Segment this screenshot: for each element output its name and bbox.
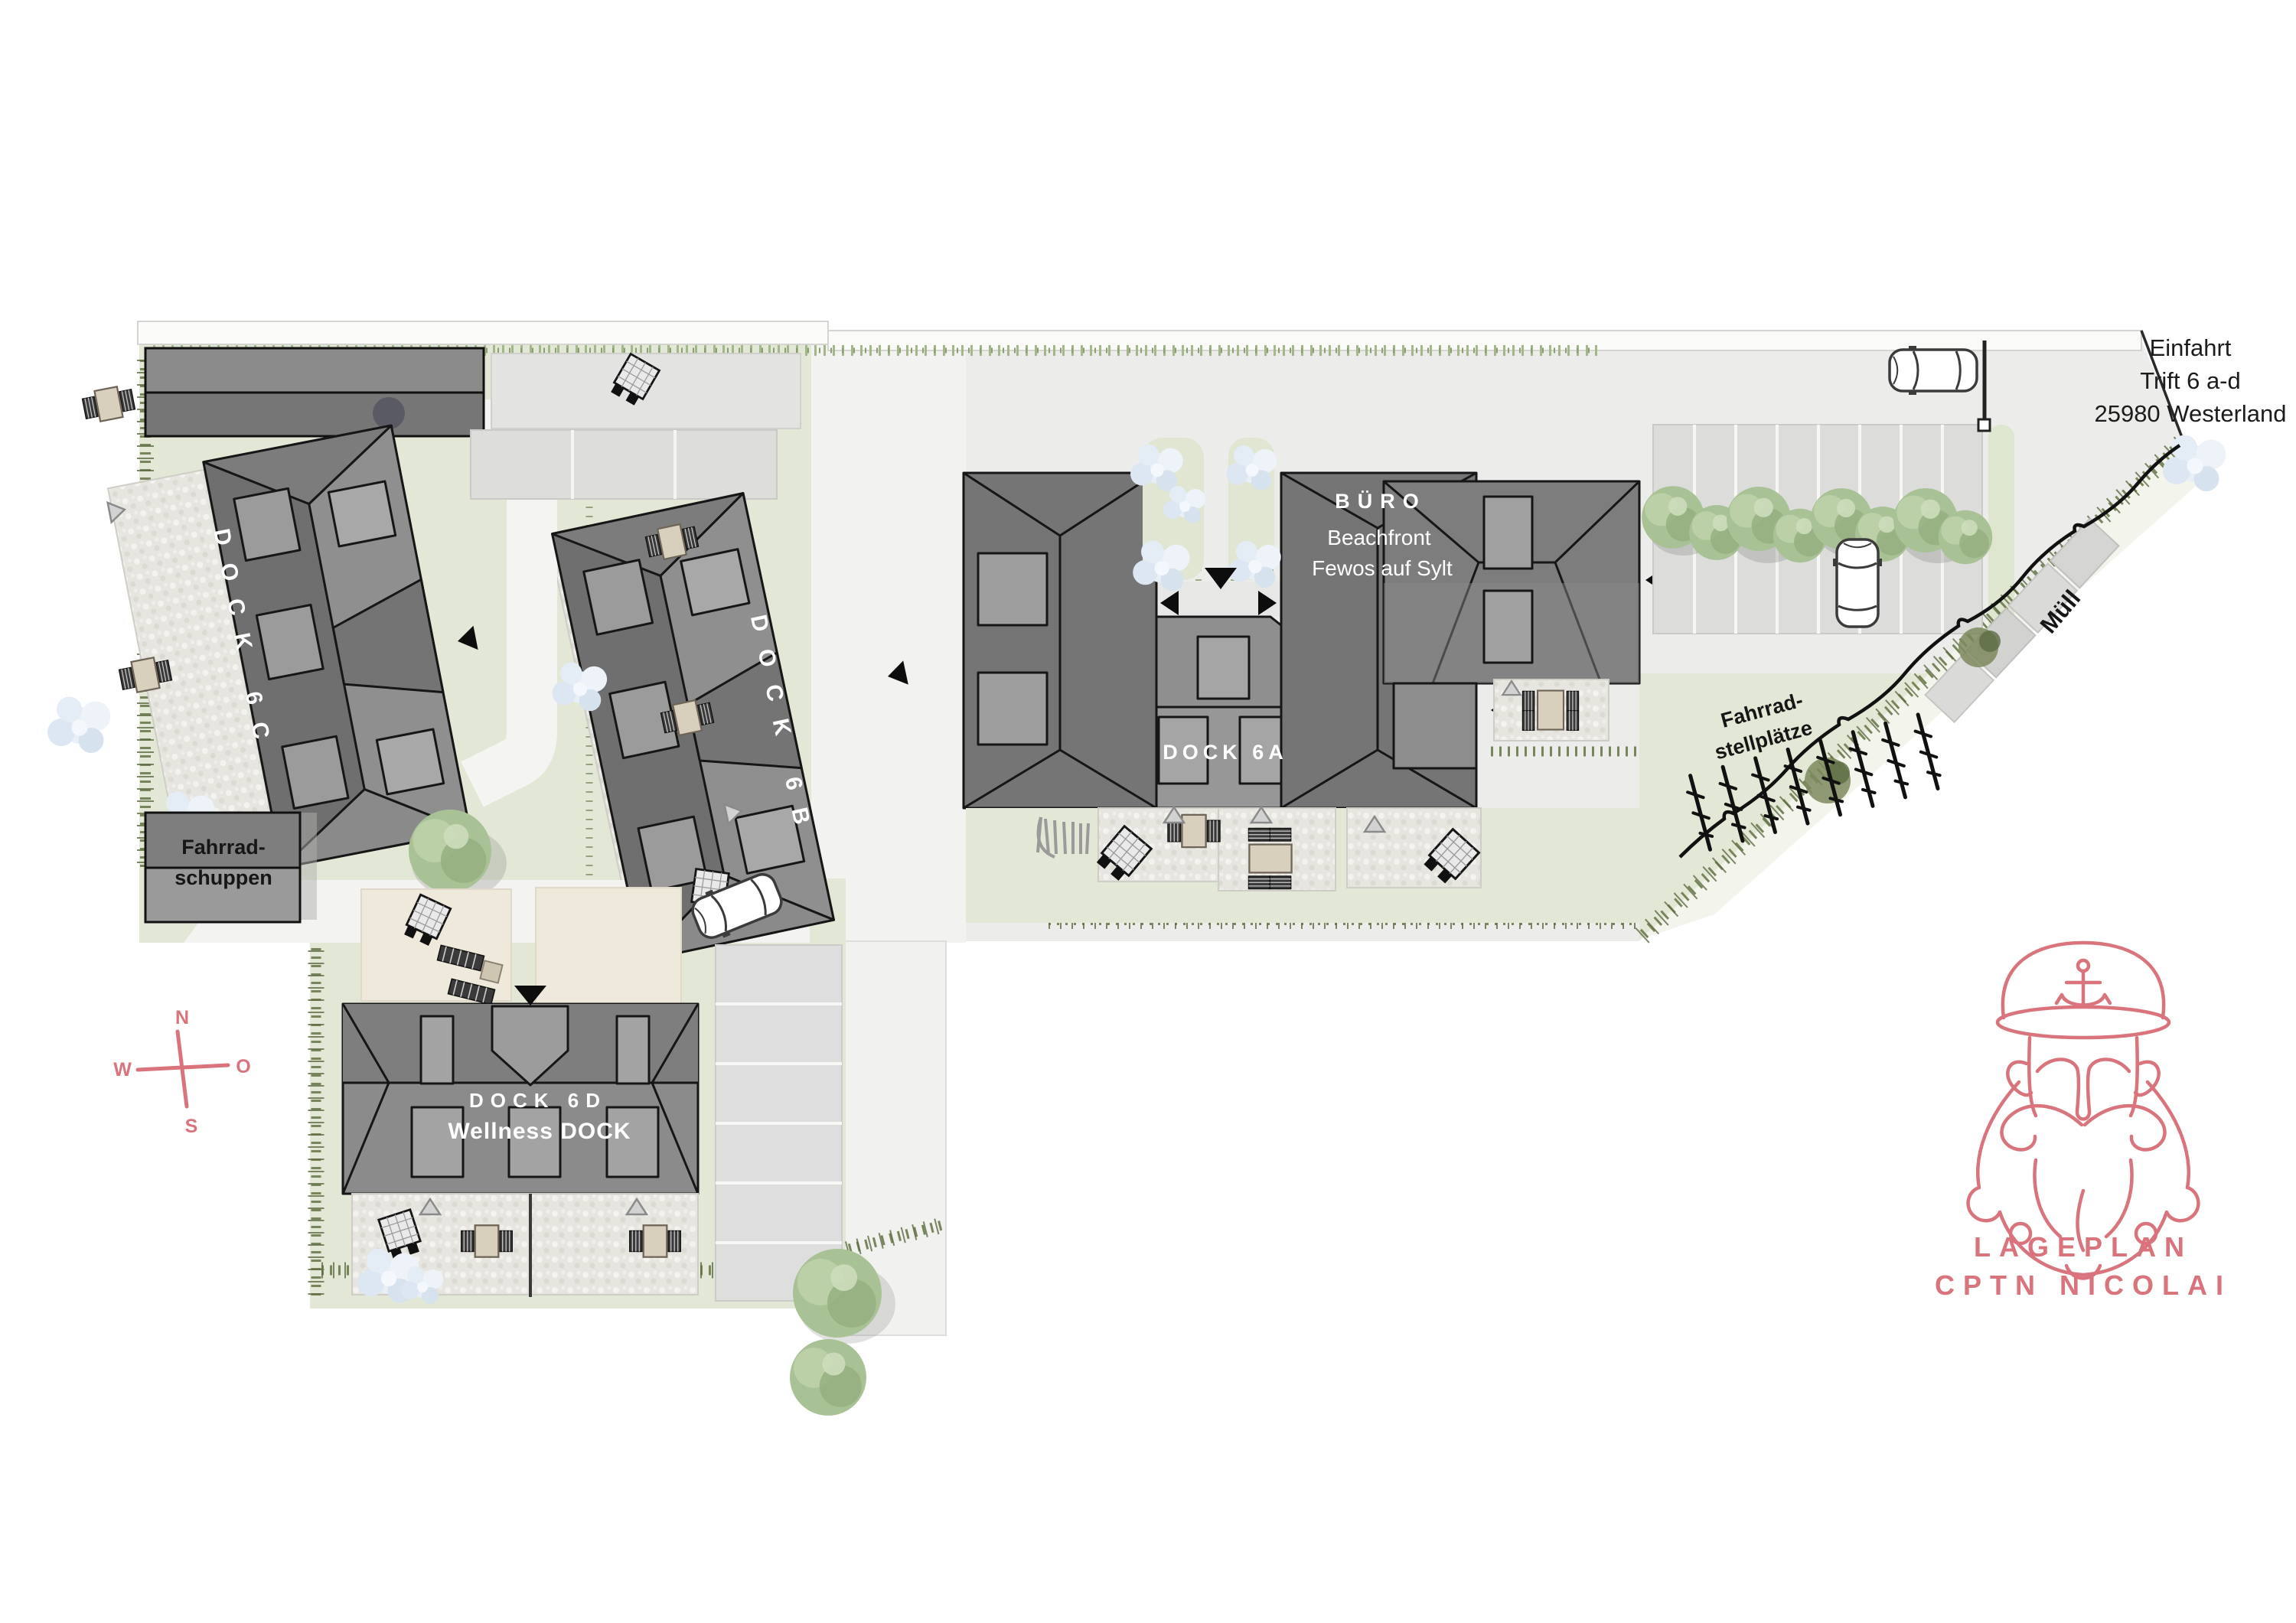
dock-6d-label: DOCK 6D bbox=[469, 1089, 607, 1112]
bike-shed-label-line2: schuppen bbox=[174, 866, 272, 889]
road-north-west bbox=[138, 321, 828, 344]
captain-logo-icon bbox=[1968, 943, 2199, 1279]
bike-shed-label-line1: Fahrrad- bbox=[181, 836, 266, 859]
garage-northwest bbox=[145, 348, 484, 436]
car-entrance bbox=[1890, 346, 1977, 395]
entrance-label-line3: 25980 Westerland bbox=[2094, 400, 2286, 427]
tree-central bbox=[409, 810, 491, 892]
gardens-south-6a bbox=[966, 807, 1639, 923]
dock-6d-subtitle: Wellness DOCK bbox=[448, 1119, 631, 1144]
stalls-between-6c-6b bbox=[471, 430, 777, 499]
car-parked bbox=[1833, 539, 1882, 627]
compass-rose-icon: N W O S bbox=[113, 1007, 251, 1137]
parking-lot bbox=[1642, 425, 1992, 634]
compass-n: N bbox=[175, 1007, 189, 1028]
office-sub2-label: Fewos auf Sylt bbox=[1312, 556, 1453, 580]
compass-w: W bbox=[113, 1059, 132, 1080]
garden-annex-east bbox=[1494, 680, 1609, 741]
office-sub1-label: Beachfront bbox=[1327, 526, 1431, 549]
office-label: BÜRO bbox=[1335, 490, 1427, 513]
site-plan: Fahrrad- schuppen DOCK 6C DOCK 6B DOCK 6… bbox=[0, 0, 2296, 1623]
logo-line2: CPTN NICOLAI bbox=[1935, 1269, 2232, 1301]
lamp-head bbox=[1978, 419, 1990, 431]
entrance-label-line1: Einfahrt bbox=[2150, 334, 2232, 361]
entrance-label-line2: Trift 6 a-d bbox=[2140, 367, 2241, 394]
bike-shed: Fahrrad- schuppen bbox=[145, 813, 317, 922]
stalls-6d bbox=[716, 945, 842, 1301]
logo-wordmark: LAGEPLAN CPTN NICOLAI bbox=[1935, 1231, 2232, 1301]
road-central bbox=[811, 341, 966, 943]
dock-6a-label: DOCK 6A bbox=[1163, 741, 1288, 764]
compass-o: O bbox=[236, 1056, 250, 1077]
compass-s: S bbox=[185, 1116, 198, 1137]
logo-line1: LAGEPLAN bbox=[1974, 1231, 2193, 1263]
site-plan-canvas: Fahrrad- schuppen DOCK 6C DOCK 6B DOCK 6… bbox=[0, 0, 2296, 1623]
